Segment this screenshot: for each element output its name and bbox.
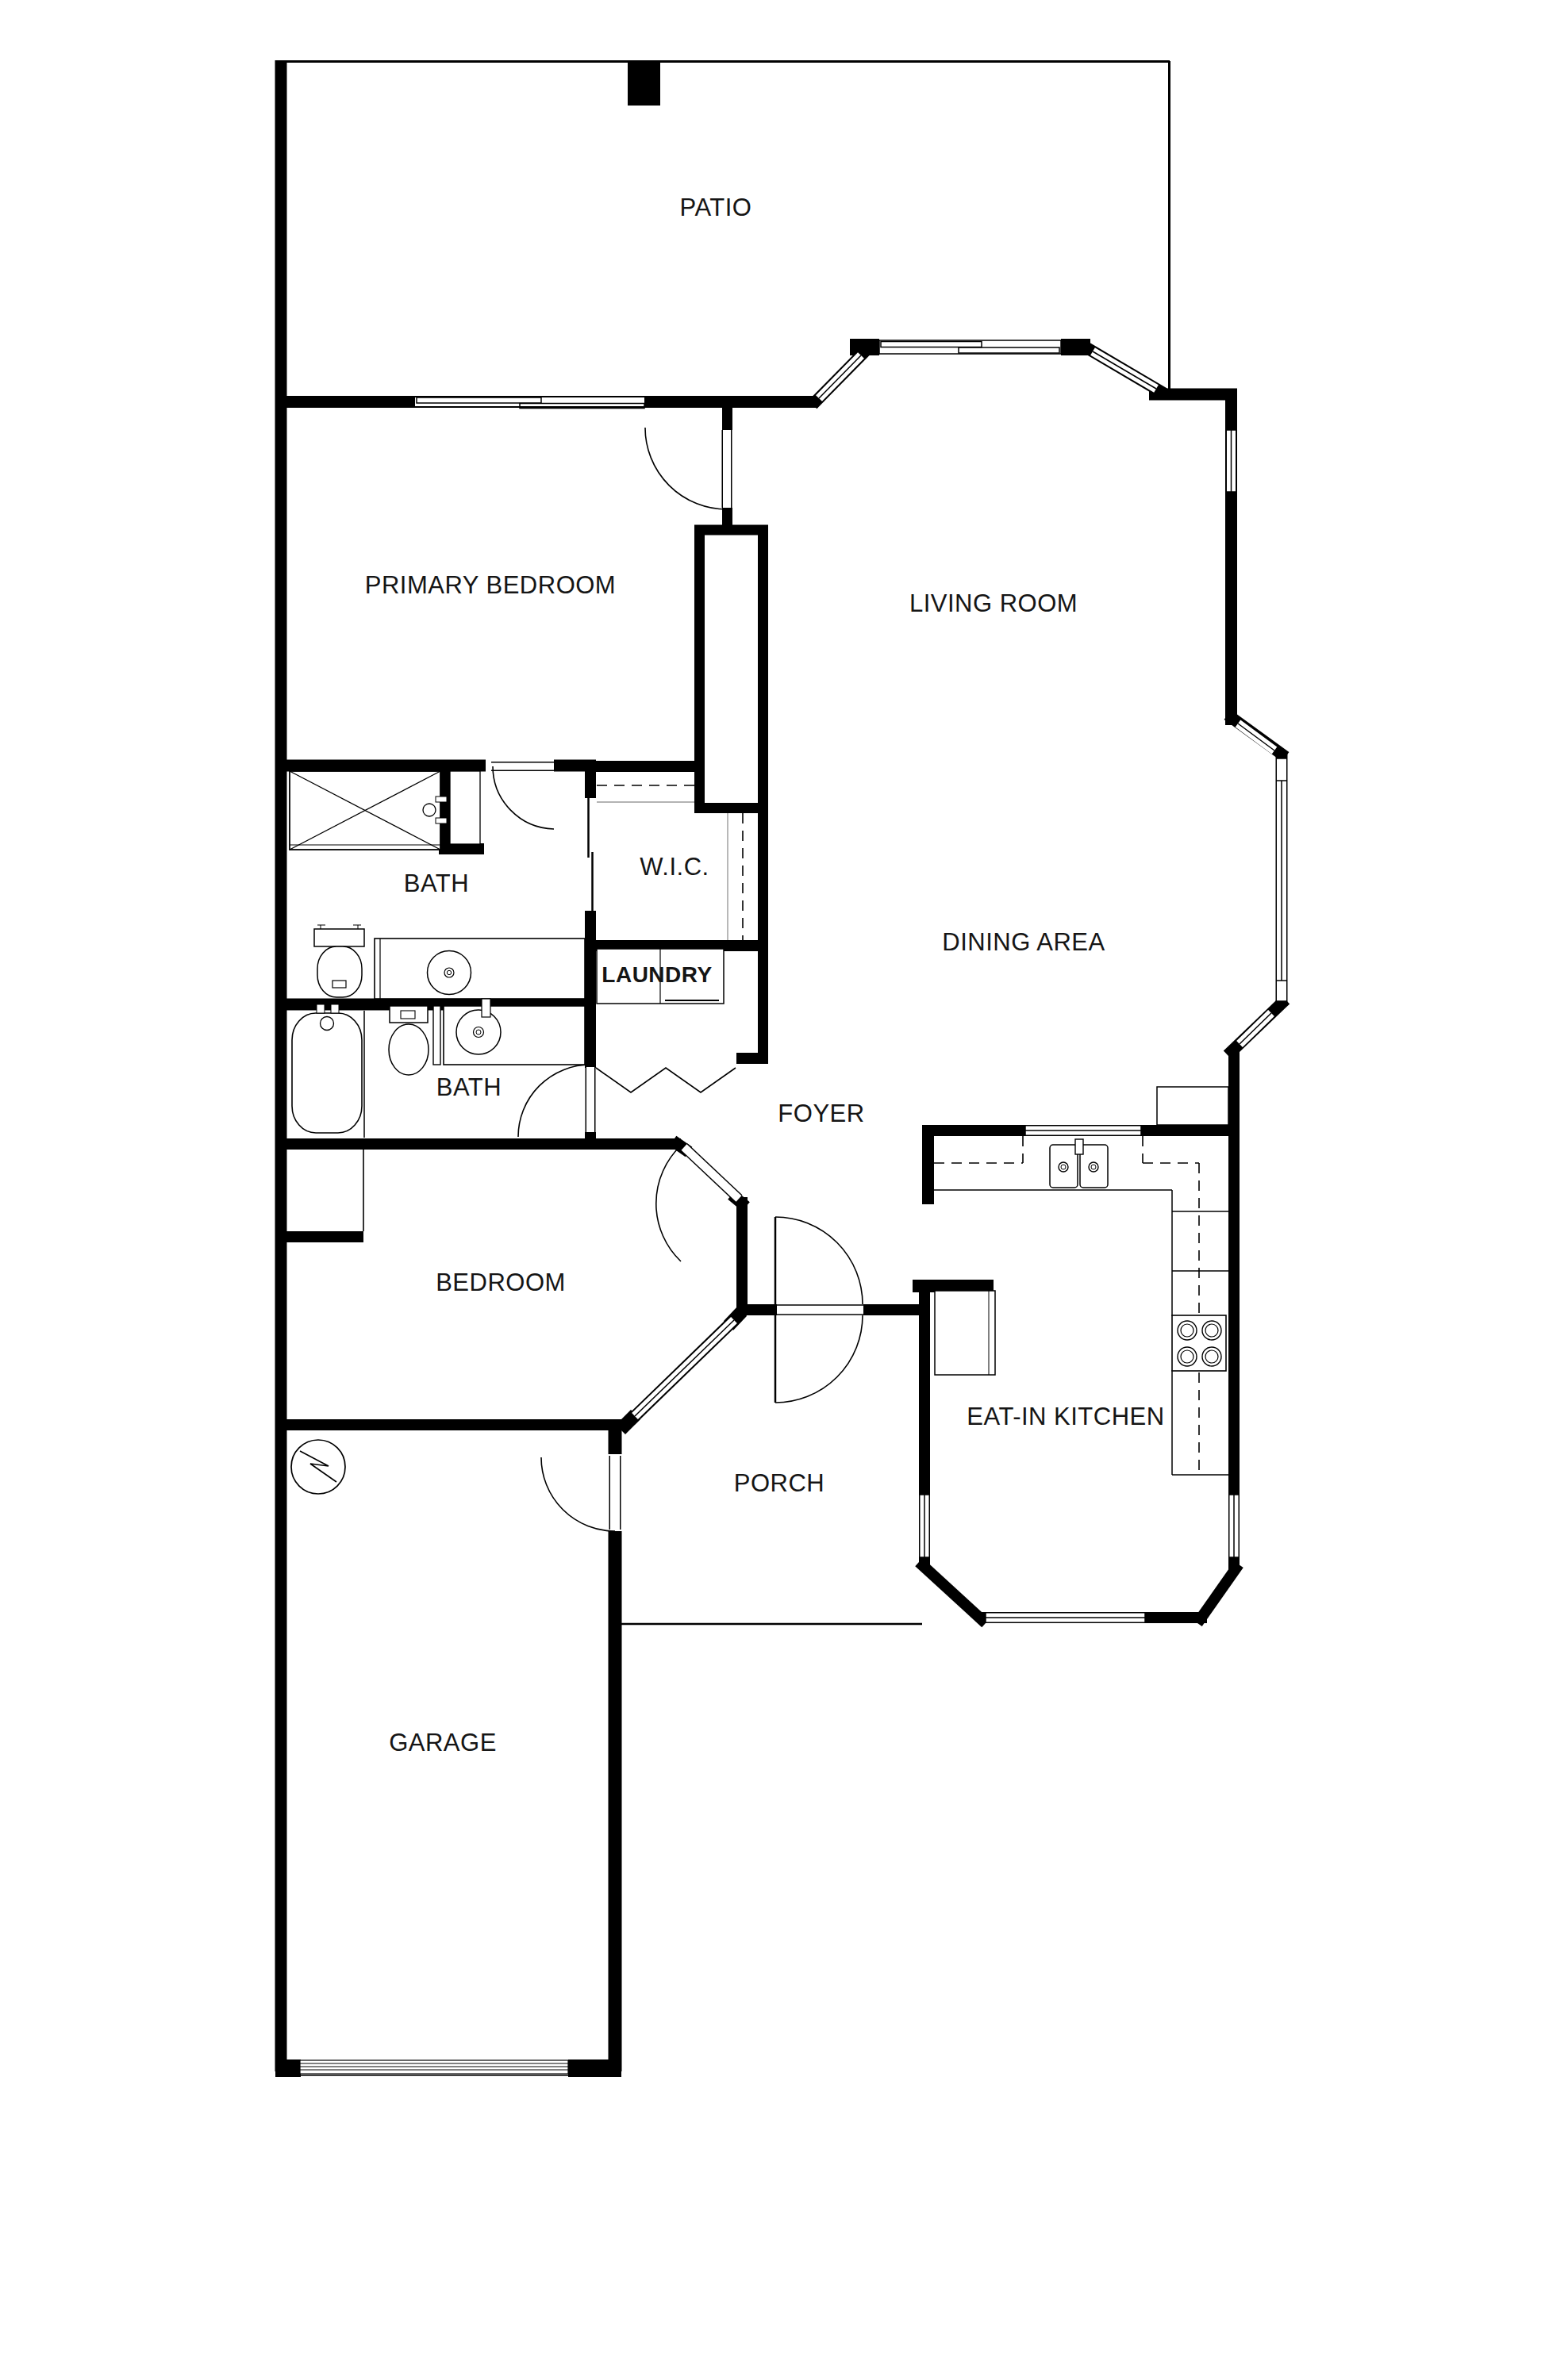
door-bedroom — [656, 1146, 739, 1261]
window-dining-right — [1276, 758, 1287, 1001]
range-cooktop-icon — [1172, 1315, 1226, 1371]
window-kitchen-bay-bottom — [986, 1612, 1145, 1623]
refrigerator-icon — [935, 1291, 995, 1375]
garage-door-icon — [300, 2060, 568, 2075]
room-label-porch: PORCH — [734, 1469, 824, 1497]
window-bay-diag-left — [813, 349, 867, 405]
room-label-dining-area: DINING AREA — [942, 928, 1105, 956]
door-garage-porch — [541, 1456, 615, 1531]
room-label-primary-bedroom: PRIMARY BEDROOM — [365, 571, 616, 599]
door-porch-entry — [775, 1315, 863, 1403]
door-primary-bedroom — [645, 428, 727, 509]
walls — [275, 60, 1286, 2077]
door-front-entry — [775, 1217, 863, 1304]
door-swing-arc — [775, 1315, 863, 1403]
room-label-wic: W.I.C. — [640, 853, 709, 881]
door-hall-bath — [518, 1065, 590, 1137]
room-label-primary-bath: BATH — [404, 869, 469, 897]
vanity-sink-icon-hall — [444, 999, 585, 1065]
floor-plan-canvas: PATIO PRIMARY BEDROOM LIVING ROOM BATH W… — [0, 0, 1549, 2380]
door-swing-arc — [518, 1065, 590, 1137]
patio-sliding-door — [879, 340, 1061, 354]
window-dining-diag-lower — [1240, 1013, 1271, 1044]
room-label-eat-in-kitchen: EAT-IN KITCHEN — [967, 1403, 1164, 1430]
room-label-laundry: LAUNDRY — [602, 962, 712, 987]
door-swing-arc — [493, 766, 554, 829]
window-living-right — [1225, 430, 1237, 492]
kitchen-sink-icon — [1050, 1139, 1108, 1188]
garage-corner-left — [275, 2059, 301, 2077]
bath-niche — [450, 771, 480, 844]
wall-kitchen-bay-diag-left — [919, 1562, 986, 1623]
door-swing-arc — [656, 1146, 681, 1261]
patio-post — [628, 60, 660, 106]
window-bay-diag-right — [1085, 347, 1164, 393]
toilet-icon-primary — [314, 925, 364, 997]
door-wic-sliding — [589, 798, 593, 911]
door-swing-arc — [775, 1217, 863, 1304]
peninsula-counter — [1157, 1087, 1228, 1125]
window-dining-diag-upper — [1238, 724, 1274, 750]
room-label-living-room: LIVING ROOM — [909, 589, 1078, 617]
door-swing-arc — [645, 428, 727, 509]
vanity-sink-icon-primary — [375, 939, 585, 999]
room-label-hall-bath: BATH — [436, 1073, 502, 1101]
door-swing-arc — [541, 1457, 615, 1531]
door-primary-bath — [491, 766, 554, 829]
room-label-bedroom: BEDROOM — [436, 1269, 566, 1296]
room-label-garage: GARAGE — [389, 1729, 497, 1756]
garage-corner-right — [568, 2059, 621, 2077]
window-kitchen-top — [1025, 1125, 1141, 1136]
window-porch-kitchen — [919, 1495, 930, 1557]
window-kitchen-right — [1228, 1495, 1240, 1557]
window-porch-diag — [631, 1316, 738, 1420]
room-label-foyer: FOYER — [778, 1100, 864, 1127]
bathtub-icon — [292, 1004, 362, 1133]
toilet-icon-hall — [389, 1006, 429, 1075]
door-foyer-closet-bifold — [596, 1068, 736, 1092]
bedroom-closet-wall — [286, 1231, 363, 1242]
bath-partition — [433, 1006, 440, 1065]
room-label-patio: PATIO — [680, 194, 752, 221]
water-heater-icon — [291, 1440, 345, 1494]
front-door-threshold — [777, 1305, 863, 1315]
floor-plan: PATIO PRIMARY BEDROOM LIVING ROOM BATH W… — [0, 0, 1549, 2380]
shower-icon — [290, 771, 447, 850]
